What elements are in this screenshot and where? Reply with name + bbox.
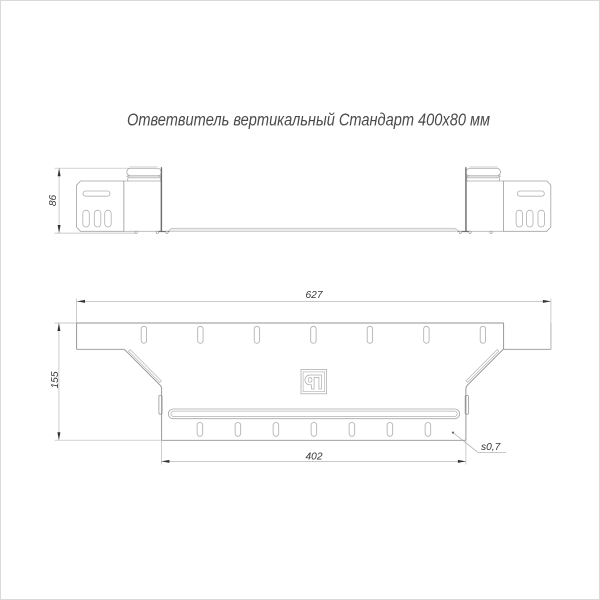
svg-text:402: 402 (306, 451, 323, 462)
svg-text:155: 155 (50, 371, 61, 388)
svg-text:627: 627 (306, 290, 323, 301)
svg-text:Ответвитель вертикальный Станд: Ответвитель вертикальный Стандарт 400х80… (127, 109, 490, 129)
svg-text:s0,7: s0,7 (481, 442, 501, 453)
svg-text:86: 86 (48, 195, 59, 207)
